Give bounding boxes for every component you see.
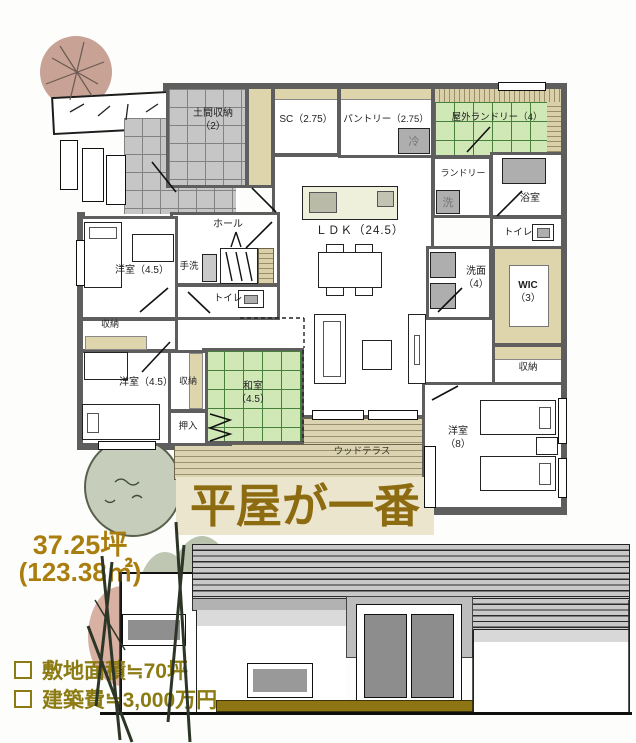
- label-pantry: パントリー（2.75）: [340, 114, 432, 126]
- hall-closet: [220, 248, 258, 284]
- label-laundry: ランドリー: [436, 168, 490, 179]
- room-doma-storage: [166, 86, 248, 188]
- area-sqm: (123.38㎡): [4, 559, 156, 586]
- cooktop: [377, 191, 394, 207]
- window: [498, 82, 546, 91]
- pillow: [87, 413, 99, 433]
- terrace-rail: [424, 446, 436, 508]
- wood-slats: [547, 102, 561, 155]
- tree-bottom-icon: [84, 437, 182, 537]
- note-line: 建築費≒3,000万円: [14, 687, 217, 716]
- room-label: トイレ: [504, 227, 533, 238]
- door-panel: [364, 614, 407, 698]
- room-label: ランドリー: [440, 168, 485, 178]
- chair: [326, 287, 344, 296]
- floorplan-page: 冷 洗 土間収納 （2） SC（2.75） パントリー（2.75） 屋外ランドリ…: [0, 0, 636, 743]
- tv-board: [408, 314, 426, 384]
- elevation-roof-main: [192, 544, 630, 600]
- room-label: ホール: [213, 219, 243, 230]
- stepping-stone-icon: [60, 140, 78, 190]
- handwash-sink: [202, 254, 217, 282]
- label-hall: ホール: [202, 219, 254, 232]
- desk: [84, 352, 128, 380]
- pillow: [539, 463, 551, 485]
- wood-slats: [258, 248, 274, 284]
- label-wic: WIC （3）: [504, 280, 552, 305]
- sofa: [314, 314, 346, 384]
- chair: [355, 287, 373, 296]
- window: [368, 410, 418, 420]
- area-tsubo: 37.25坪: [4, 531, 156, 559]
- window: [558, 398, 567, 444]
- elevation-window: [247, 663, 313, 698]
- room-label: 手洗: [179, 261, 198, 272]
- nightstand: [536, 437, 558, 455]
- window: [98, 441, 156, 450]
- bathtub: [502, 158, 546, 184]
- washer-label: 洗: [443, 194, 454, 210]
- vanity-sink: [430, 252, 456, 278]
- sofa-seat: [323, 321, 341, 377]
- corridor-southwest: [170, 318, 280, 352]
- window: [558, 458, 567, 498]
- shelf-strip: [85, 336, 147, 350]
- pillow: [89, 227, 117, 239]
- bed: [480, 456, 556, 491]
- note-line: 敷地面積≒70坪: [14, 658, 217, 687]
- checkbox-icon: [14, 661, 32, 679]
- label-toilet-right: トイレ: [498, 227, 538, 239]
- elevation-base-strip: [216, 700, 474, 712]
- room-label: SC（2.75）: [279, 114, 332, 125]
- room-size: （3）: [515, 293, 541, 304]
- window: [76, 240, 85, 286]
- fridge-label: 冷: [409, 133, 420, 149]
- washing-machine: 洗: [436, 190, 460, 214]
- room-label: 和室: [243, 381, 263, 392]
- wood-terrace-upper: [300, 418, 434, 446]
- corridor-east: [426, 318, 492, 384]
- room-label: 収納: [179, 376, 197, 386]
- room-label: トイレ: [214, 293, 243, 304]
- pillow: [539, 407, 551, 429]
- fridge: 冷: [398, 128, 430, 154]
- turf-grid: [435, 102, 547, 155]
- room-label: 収納: [101, 319, 119, 329]
- page-title: 平屋が一番: [190, 483, 420, 529]
- room-size: （4）: [463, 279, 489, 290]
- room-label: ウッドテラス: [334, 446, 391, 457]
- room-label: 押入: [178, 421, 197, 432]
- title-band: 平屋が一番: [176, 477, 434, 535]
- room-label: 収納: [518, 362, 537, 373]
- wall-shadow: [474, 630, 629, 642]
- bed: [84, 222, 122, 288]
- elevation-roof-right: [460, 598, 630, 630]
- shelf-strip: [246, 86, 274, 188]
- chair: [355, 244, 373, 253]
- note-text: 建築費≒3,000万円: [42, 689, 217, 712]
- label-wood-terrace: ウッドテラス: [322, 446, 402, 458]
- bed: [480, 400, 556, 435]
- stepping-stone-icon: [106, 155, 126, 205]
- wall-shadow: [197, 610, 346, 626]
- room-label: パントリー（2.75）: [343, 114, 428, 125]
- room-label: 洗面: [466, 266, 486, 277]
- vanity-sink: [430, 283, 456, 309]
- dining-table: [318, 252, 382, 288]
- kitchen-sink: [309, 192, 337, 213]
- room-label: 洋室（4.5）: [119, 377, 173, 388]
- tv: [414, 335, 420, 365]
- elevation-wall-right: [473, 630, 630, 712]
- desk: [132, 234, 174, 262]
- label-toilet-left: トイレ: [208, 293, 248, 305]
- room-size: （2）: [200, 121, 226, 132]
- label-bedroom-nw: 洋室（4.5）: [106, 265, 178, 278]
- label-washroom: 洗面 （4）: [458, 266, 494, 291]
- room-size: （4.5）: [236, 394, 270, 405]
- room-size: （8）: [445, 439, 471, 450]
- label-outdoor-laundry: 屋外ランドリー（4）: [438, 112, 556, 124]
- label-handwash: 手洗: [174, 261, 204, 273]
- window-glass: [253, 669, 307, 692]
- label-doma: 土間収納 （2）: [173, 108, 253, 133]
- kitchen-island: [302, 186, 398, 220]
- toilet-tank: [537, 228, 550, 238]
- label-washitsu: 和室 （4.5）: [228, 381, 278, 406]
- room-label: 浴室: [520, 193, 540, 204]
- door-panel: [411, 614, 454, 698]
- checkbox-icon: [14, 690, 32, 708]
- label-storage-right: 収納: [510, 362, 546, 374]
- window-glass: [128, 620, 180, 640]
- room-label: ＬＤＫ（24.5）: [316, 225, 405, 237]
- area-figures: 37.25坪 (123.38㎡): [4, 531, 156, 587]
- room-label: 屋外ランドリー（4）: [452, 112, 543, 123]
- stepping-stone-icon: [82, 148, 104, 202]
- elevation-door-frame: [356, 604, 462, 702]
- shelf-strip: [275, 89, 337, 100]
- room-label: 洋室（4.5）: [115, 265, 169, 276]
- window: [312, 410, 364, 420]
- bed: [82, 404, 160, 440]
- label-storage-nw: 収納: [92, 319, 128, 330]
- label-sc: SC（2.75）: [272, 114, 340, 127]
- note-text: 敷地面積≒70坪: [42, 660, 188, 683]
- room-label: 洋室: [448, 426, 468, 437]
- room-label: WIC: [518, 280, 537, 291]
- room-label: 土間収納: [193, 108, 233, 119]
- notes-block: 敷地面積≒70坪 建築費≒3,000万円: [14, 658, 217, 716]
- label-oshiire: 押入: [171, 421, 205, 433]
- elevation-window: [122, 614, 186, 646]
- shelf-strip: [495, 347, 561, 360]
- label-bedroom-right: 洋室 （8）: [436, 426, 480, 451]
- chair: [326, 244, 344, 253]
- shelf-strip: [341, 89, 431, 100]
- label-ldk: ＬＤＫ（24.5）: [310, 224, 410, 238]
- label-bath: 浴室: [505, 193, 555, 206]
- coffee-table: [362, 340, 392, 370]
- label-storage-center: 収納: [172, 376, 204, 387]
